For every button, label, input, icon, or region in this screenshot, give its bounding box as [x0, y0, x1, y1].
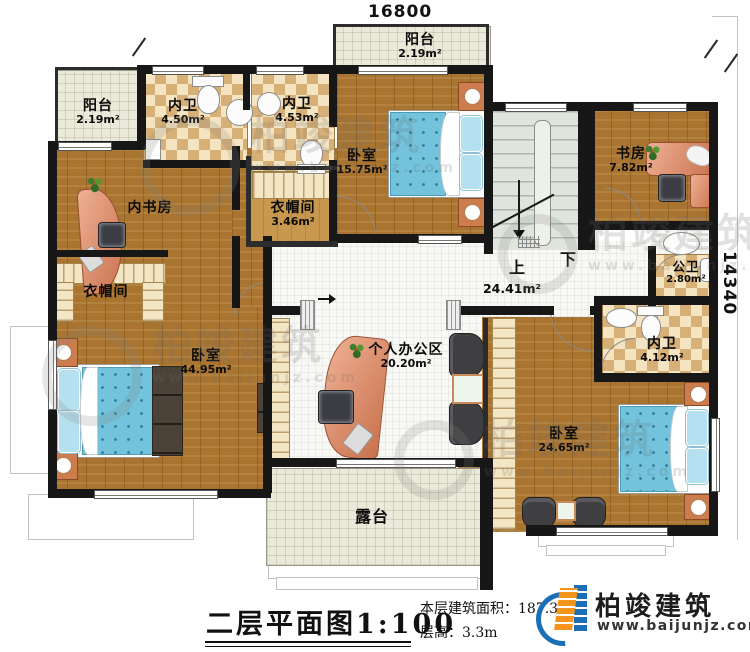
dimension-width: 16800: [368, 2, 432, 22]
nightstand: [458, 198, 487, 227]
terrace-door: [336, 459, 456, 468]
pillow: [686, 410, 708, 446]
armchair: [449, 401, 484, 445]
room-label-inner-study: 内书房: [118, 200, 182, 216]
stair-direction-line: [518, 180, 520, 232]
pillow: [460, 116, 482, 152]
window: [711, 418, 720, 492]
axis-tick: [132, 37, 146, 56]
closet-rod: [252, 172, 332, 199]
room-label-closet-left: 衣帽间: [70, 284, 142, 300]
armchair: [449, 333, 484, 377]
axis-tick: [704, 39, 718, 58]
pillow: [58, 411, 80, 453]
plant: [86, 176, 103, 193]
balcony-parapet: [486, 24, 489, 68]
room-label-hallway-area: 24.41m²: [482, 282, 542, 296]
wall: [232, 146, 240, 210]
dimension-extension-line: [712, 16, 738, 17]
stairs-down-label: 下: [560, 246, 576, 270]
dimension-height: 14340: [719, 251, 739, 325]
wall: [263, 236, 272, 493]
window: [556, 527, 668, 536]
computer-monitor: [318, 390, 354, 424]
wall: [592, 221, 718, 230]
wall: [594, 296, 718, 305]
wall: [48, 141, 57, 498]
floor-height-info: 层高：3.3m: [420, 622, 498, 642]
nightstand: [458, 82, 487, 111]
nightstand: [684, 382, 712, 406]
partition: [483, 318, 488, 458]
title-underline: [205, 646, 411, 647]
balcony-parapet: [333, 24, 336, 68]
wall: [246, 241, 338, 247]
window: [505, 103, 567, 112]
nightstand: [684, 494, 712, 520]
window: [256, 66, 304, 75]
pillow: [58, 369, 80, 411]
bedroom-right-closet: [492, 318, 516, 530]
door-opening: [418, 235, 462, 244]
floor-height-value: 3.3m: [462, 625, 498, 641]
lower-floor-outline: [10, 326, 50, 474]
bifold-door: [446, 300, 461, 330]
room-label-office: 个人办公区20.20m²: [358, 342, 454, 371]
room-label-balcony-top-center: 阳台2.19m²: [380, 32, 460, 61]
wall: [594, 373, 718, 382]
room-label-public-bath: 公卫2.80m²: [658, 260, 714, 286]
axis-tick: [724, 53, 738, 72]
terrace-steps-outline: [276, 577, 478, 590]
room-label-bath-b: 内卫4.53m²: [262, 96, 332, 125]
pillow: [686, 448, 708, 484]
computer-monitor: [658, 174, 686, 202]
pillow: [460, 154, 482, 190]
balcony-parapet: [55, 67, 140, 70]
wall: [484, 65, 493, 254]
side-table: [452, 374, 484, 404]
room-label-bath-right: 内卫4.12m²: [630, 336, 694, 365]
bedroom-steps-outline: [546, 545, 666, 556]
bed-sheet: [80, 367, 98, 455]
under-stair-hatch: [518, 236, 540, 248]
room-label-bath-a: 内卫4.50m²: [148, 98, 218, 127]
title-underline: [205, 641, 411, 643]
wall: [246, 156, 251, 246]
sink: [663, 232, 700, 255]
wall: [590, 306, 602, 315]
side-table: [556, 501, 576, 521]
bed-blanket: [390, 112, 446, 196]
window: [152, 66, 204, 75]
wall: [137, 65, 146, 149]
wall: [329, 234, 493, 243]
wall: [243, 65, 250, 110]
wall: [48, 250, 168, 257]
wall: [249, 166, 337, 170]
room-label-closet-center: 衣帽间3.46m²: [258, 200, 328, 229]
stairs-up-label: 上: [509, 254, 525, 278]
bed-sheet: [440, 112, 460, 196]
sink: [606, 308, 637, 328]
balcony-parapet: [333, 24, 489, 27]
room-label-terrace: 露台: [340, 508, 404, 526]
room-label-study: 书房7.82m²: [600, 146, 662, 175]
window: [633, 103, 687, 112]
entry-arrow: [318, 298, 334, 300]
wall: [232, 236, 240, 308]
window: [94, 490, 218, 499]
wall: [456, 306, 554, 315]
window: [358, 66, 448, 75]
lower-floor-outline: [28, 494, 194, 540]
wall: [480, 458, 493, 590]
closet-rod: [142, 282, 164, 322]
bifold-door: [300, 300, 315, 330]
dimension-extension-line: [737, 16, 738, 102]
computer-monitor: [98, 222, 126, 248]
washer: [145, 139, 161, 160]
floor-plan: 阳台2.19m² 内卫4.50m² 内卫4.53m² 卧室15.75m² 阳台2…: [0, 0, 750, 652]
stair-rail: [534, 120, 551, 246]
room-label-bedroom-top: 卧室15.75m²: [330, 148, 394, 177]
logo-website: www.baijunjz.com: [597, 618, 750, 634]
room-label-balcony-top-left: 阳台2.19m²: [58, 98, 138, 127]
window: [58, 142, 112, 151]
room-label-bedroom-right: 卧室24.65m²: [530, 426, 598, 455]
room-label-bedroom-left: 卧室44.95m²: [165, 348, 247, 377]
window: [48, 340, 57, 410]
wardrobe-cabinet: [152, 366, 183, 456]
drawing-title: 二层平面图1:100: [206, 602, 456, 641]
